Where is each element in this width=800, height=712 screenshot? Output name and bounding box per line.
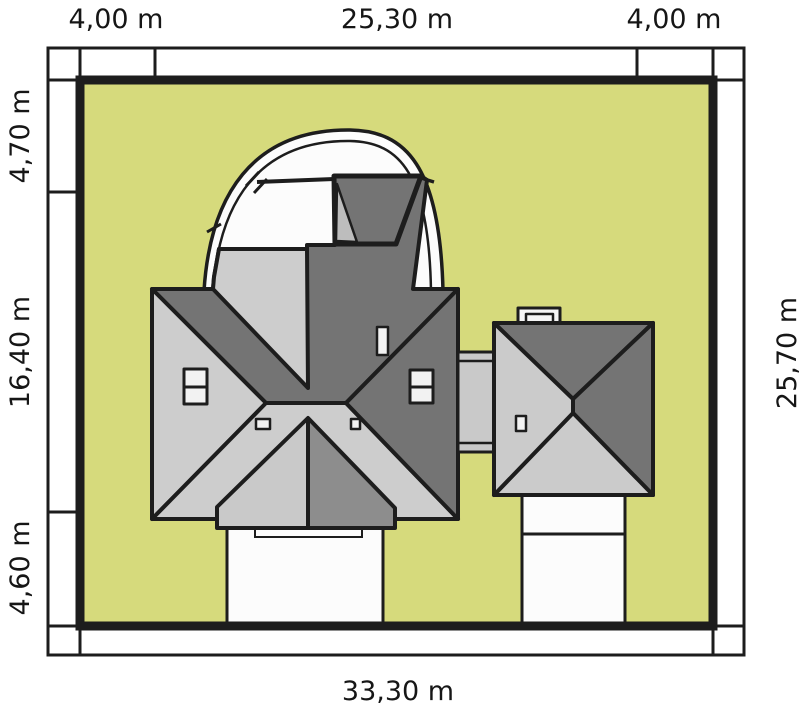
driveway: [522, 495, 625, 626]
dim-left-bottom: 4,60 m: [5, 520, 36, 615]
roof-vent-right: [351, 419, 360, 429]
skylight-small: [377, 327, 388, 355]
roof-vent-left: [256, 419, 270, 429]
site-plan: 4,00 m 25,30 m 4,00 m 4,70 m 16,40 m 4,6…: [0, 0, 800, 712]
dim-top-left: 4,00 m: [68, 4, 163, 35]
dim-top-center: 25,30 m: [341, 4, 453, 35]
dim-right: 25,70 m: [772, 297, 800, 409]
garage-roof-window: [516, 416, 526, 431]
garage-roof: [494, 308, 653, 495]
terrace: [227, 527, 383, 626]
dim-top-right: 4,00 m: [626, 4, 721, 35]
connector-passage: [458, 352, 495, 452]
dim-left-middle: 16,40 m: [5, 296, 36, 408]
dim-bottom: 33,30 m: [342, 676, 454, 707]
dim-left-top: 4,70 m: [5, 88, 36, 183]
